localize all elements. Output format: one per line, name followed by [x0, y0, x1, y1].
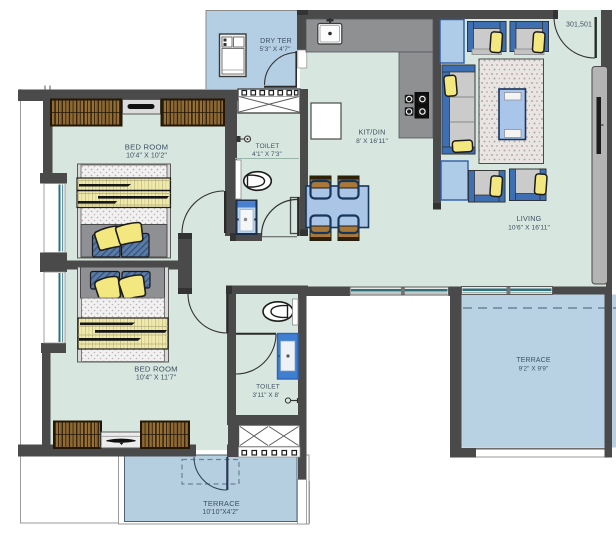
svg-text:TERRACE: TERRACE — [516, 357, 551, 364]
svg-text:KIT/DIN: KIT/DIN — [359, 128, 386, 137]
svg-text:BED ROOM: BED ROOM — [125, 143, 168, 152]
svg-text:TERRACE: TERRACE — [203, 499, 240, 508]
svg-text:10'4" X 11'7": 10'4" X 11'7" — [136, 375, 177, 382]
svg-text:10'4" X 10'2": 10'4" X 10'2" — [126, 153, 167, 160]
svg-text:5'3" X 4'7": 5'3" X 4'7" — [259, 46, 291, 53]
svg-text:10'10"X4'2": 10'10"X4'2" — [202, 509, 239, 516]
svg-text:TOILET: TOILET — [256, 143, 280, 150]
svg-text:9'2" X 9'9": 9'2" X 9'9" — [519, 366, 549, 373]
svg-text:301,501: 301,501 — [566, 22, 592, 29]
svg-text:8' X 16'11": 8' X 16'11" — [356, 138, 388, 145]
svg-text:3'11" X 8': 3'11" X 8' — [253, 392, 280, 399]
svg-text:4'1" X 7'3": 4'1" X 7'3" — [252, 151, 282, 158]
svg-text:LIVING: LIVING — [517, 214, 542, 223]
svg-text:BED ROOM: BED ROOM — [134, 365, 177, 374]
svg-text:TOILET: TOILET — [256, 384, 280, 391]
svg-text:DRY TER: DRY TER — [260, 38, 292, 45]
svg-text:10'6" X 16'11": 10'6" X 16'11" — [508, 225, 550, 232]
